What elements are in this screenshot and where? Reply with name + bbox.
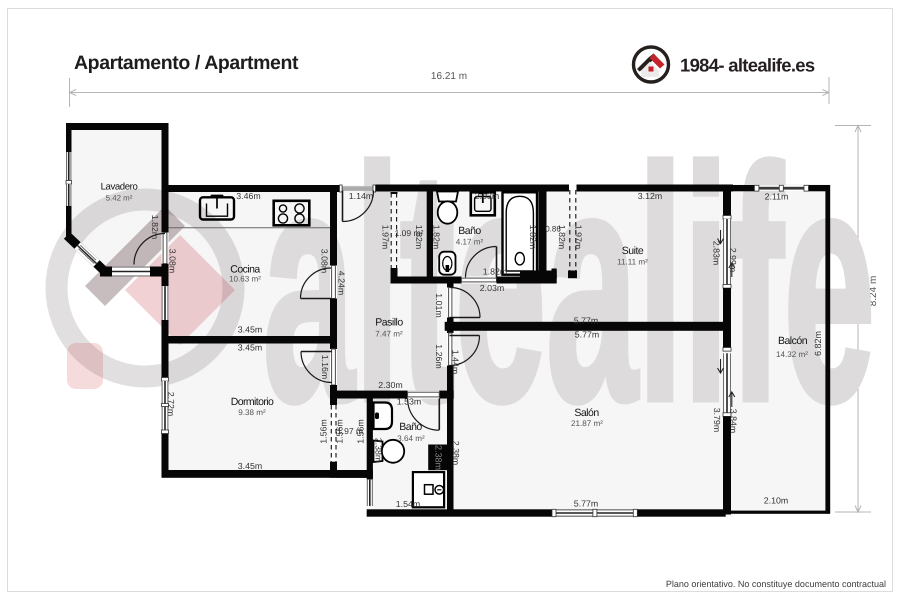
svg-text:2.11m: 2.11m [765, 192, 789, 202]
svg-text:1.82m: 1.82m [150, 215, 160, 239]
svg-text:14.32 m²: 14.32 m² [776, 350, 808, 359]
svg-text:6.82m: 6.82m [813, 331, 823, 356]
svg-text:1.82m: 1.82m [432, 225, 442, 249]
svg-text:3.45m: 3.45m [238, 461, 262, 471]
svg-text:2.99m: 2.99m [728, 248, 738, 272]
svg-text:3.64 m²: 3.64 m² [397, 434, 425, 443]
svg-text:Suite: Suite [622, 245, 644, 257]
svg-text:Dormitorio: Dormitorio [231, 396, 274, 408]
svg-text:3.45m: 3.45m [238, 343, 262, 353]
svg-text:1.56m: 1.56m [318, 419, 328, 443]
svg-text:3.46m: 3.46m [236, 191, 260, 201]
svg-text:1.82m: 1.82m [483, 267, 507, 277]
svg-text:1.97m: 1.97m [381, 225, 391, 249]
svg-text:1.01m: 1.01m [434, 293, 444, 317]
svg-text:7.47 m²: 7.47 m² [375, 330, 403, 339]
svg-text:1.26m: 1.26m [434, 344, 444, 368]
svg-text:1.82m: 1.82m [414, 225, 424, 249]
svg-text:4.24m: 4.24m [337, 271, 347, 295]
svg-text:10.63 m²: 10.63 m² [229, 275, 261, 284]
svg-text:11.11 m²: 11.11 m² [617, 258, 648, 267]
svg-text:1.14m: 1.14m [349, 191, 373, 201]
svg-text:2.38m: 2.38m [451, 441, 461, 465]
svg-text:3.12m: 3.12m [638, 191, 662, 201]
svg-text:3.45m: 3.45m [238, 324, 262, 334]
svg-text:5.77m: 5.77m [574, 315, 598, 325]
svg-text:2.38m: 2.38m [374, 438, 384, 462]
svg-text:4.17 m²: 4.17 m² [456, 238, 484, 247]
svg-text:Baño: Baño [399, 421, 422, 433]
svg-text:1.82m: 1.82m [528, 225, 538, 249]
svg-text:2.03m: 2.03m [475, 191, 499, 201]
svg-text:Balcón: Balcón [778, 335, 808, 347]
svg-text:1.44m: 1.44m [450, 350, 460, 374]
svg-text:Baño: Baño [458, 225, 481, 237]
svg-text:5.77m: 5.77m [575, 330, 599, 340]
svg-text:3.08m: 3.08m [168, 249, 178, 273]
svg-text:2.03m: 2.03m [480, 283, 504, 293]
svg-text:1.53m: 1.53m [397, 397, 421, 407]
svg-text:Plano orientativo. No constitu: Plano orientativo. No constituye documen… [666, 579, 886, 589]
svg-text:1.54m: 1.54m [396, 499, 420, 509]
svg-text:1.97m: 1.97m [574, 225, 584, 249]
svg-text:3.08m: 3.08m [320, 249, 330, 273]
svg-text:2.72m: 2.72m [166, 392, 176, 416]
svg-text:2.10m: 2.10m [764, 496, 788, 506]
svg-text:5.77m: 5.77m [574, 499, 598, 509]
svg-text:1.16m: 1.16m [320, 355, 330, 379]
svg-text:2.38m: 2.38m [433, 445, 443, 470]
svg-text:3.79m: 3.79m [712, 408, 722, 432]
svg-text:altealife: altealife [263, 100, 875, 469]
svg-text:3.84m: 3.84m [729, 409, 739, 433]
svg-text:16.21 m: 16.21 m [431, 71, 467, 82]
svg-text:2.30m: 2.30m [378, 380, 402, 390]
svg-text:Pasillo: Pasillo [375, 317, 403, 329]
svg-text:Lavadero: Lavadero [101, 182, 138, 193]
svg-text:Salón: Salón [574, 407, 599, 419]
svg-text:1.82m: 1.82m [557, 225, 567, 249]
svg-text:1984- altealife.es: 1984- altealife.es [680, 55, 815, 76]
svg-text:Apartamento / Apartment: Apartamento / Apartment [74, 52, 299, 74]
svg-text:21.87 m²: 21.87 m² [571, 419, 603, 428]
svg-text:2.83m: 2.83m [712, 241, 722, 265]
svg-text:1.56m: 1.56m [355, 419, 365, 443]
svg-text:9.38 m²: 9.38 m² [238, 408, 266, 417]
svg-text:5.42 m²: 5.42 m² [106, 194, 133, 203]
